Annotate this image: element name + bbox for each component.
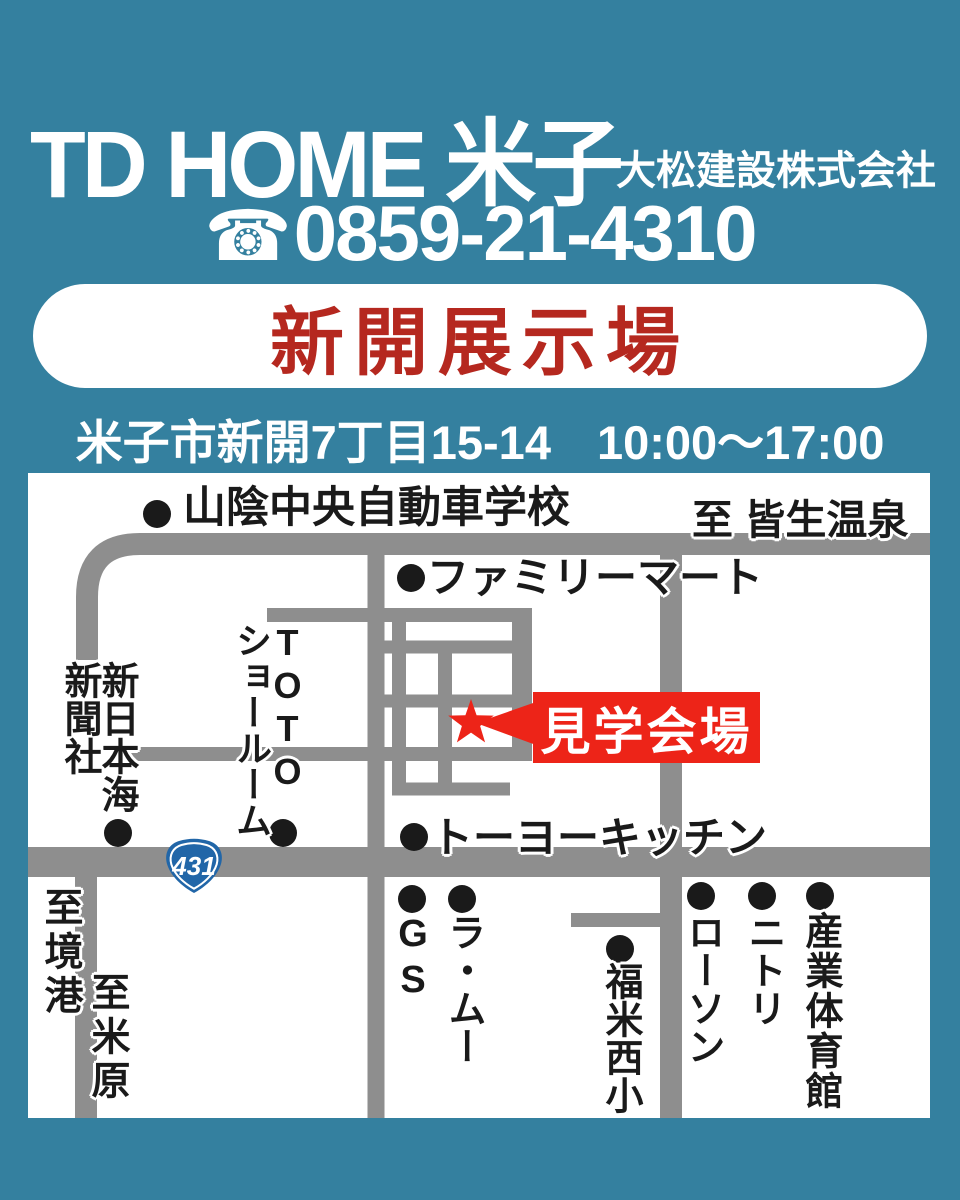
label-toto: TOTO xyxy=(269,622,305,794)
address-row: 米子市新開7丁目15-14 10:00〜17:00 xyxy=(0,404,960,473)
label-toto-showroom: ショールーム xyxy=(233,622,269,838)
phone-row: ☎0859-21-4310 xyxy=(0,188,960,279)
address-text: 米子市新開7丁目15-14 xyxy=(76,404,551,473)
dot-lamu xyxy=(448,885,476,913)
dot-toto xyxy=(269,819,297,847)
banner-title: 新開展示場 xyxy=(270,283,690,390)
label-familymart: ファミリーマート xyxy=(427,557,763,599)
dot-school xyxy=(606,935,634,963)
telephone-icon: ☎ xyxy=(205,197,290,275)
venue-arrow xyxy=(476,702,536,745)
label-shimbunsha: 新聞社 xyxy=(60,661,98,775)
banner-pill: 新開展示場 xyxy=(33,284,927,388)
dot-lawson xyxy=(687,882,715,910)
venue-callout-text: 見学会場 xyxy=(541,692,753,764)
label-to-sakaiminato: 至境港 xyxy=(41,887,80,1019)
label-lawson: ローソン xyxy=(683,913,721,1065)
open-hours: 10:00〜17:00 xyxy=(597,404,884,473)
label-sangyo-gymnasium: 産業体育館 xyxy=(801,911,839,1111)
dot-newspaper xyxy=(104,819,132,847)
dot-gymnasium xyxy=(806,882,834,910)
phone-number: 0859-21-4310 xyxy=(294,189,756,277)
label-shin-nihonkai: 新日本海 xyxy=(97,661,135,813)
dot-nitori xyxy=(748,882,776,910)
label-gs: GS xyxy=(394,913,432,1005)
access-map: 431 山陰中央自動車学校 至 皆生温泉 ファミリーマート トーヨーキッチン T… xyxy=(28,473,930,1118)
label-lamu: ラ・ムー xyxy=(444,913,482,1065)
dot-familymart xyxy=(397,564,425,592)
route-badge-number: 431 xyxy=(171,851,215,881)
label-to-maibara: 至米原 xyxy=(88,972,127,1104)
label-fukuyone-nishi: 福米西小 xyxy=(601,962,639,1114)
route-431-badge: 431 xyxy=(166,839,222,893)
dot-gs xyxy=(398,885,426,913)
label-to-kaike-onsen: 至 皆生温泉 xyxy=(692,500,908,541)
dot-toyo-kitchen xyxy=(400,823,428,851)
label-toyo-kitchen: トーヨーキッチン xyxy=(431,817,767,859)
label-driving-school: 山陰中央自動車学校 xyxy=(183,487,570,530)
dot-driving-school xyxy=(143,500,171,528)
label-nitori: ニトリ xyxy=(744,913,782,1027)
venue-callout: 見学会場 xyxy=(533,692,760,763)
flyer: TD HOME 米子 大松建設株式会社 ☎0859-21-4310 新開展示場 … xyxy=(0,0,960,1200)
